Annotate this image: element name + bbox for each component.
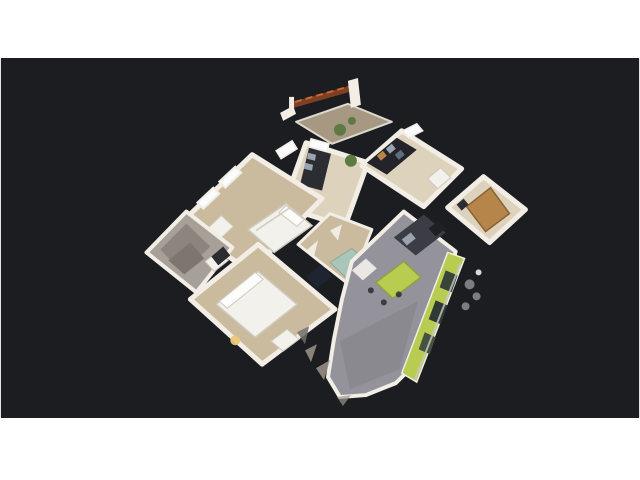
dining-chair [381, 299, 387, 305]
terrace-plant-icon [348, 117, 356, 125]
balcony-object [476, 269, 482, 275]
balcony-object [465, 279, 475, 289]
viewer-window [0, 0, 640, 480]
dining-chair [396, 291, 402, 297]
office-plant-icon [345, 155, 357, 167]
bedroom2-lamp-glow [230, 335, 240, 345]
viewer-canvas[interactable] [0, 58, 640, 419]
balcony-object [473, 292, 481, 300]
letterbox-bottom [0, 419, 640, 480]
letterbox-top [0, 0, 640, 58]
balcony-object [462, 302, 470, 310]
dollhouse-3d-view[interactable] [0, 58, 640, 419]
terrace-plant-icon [334, 124, 346, 136]
dining-chair [368, 287, 374, 293]
